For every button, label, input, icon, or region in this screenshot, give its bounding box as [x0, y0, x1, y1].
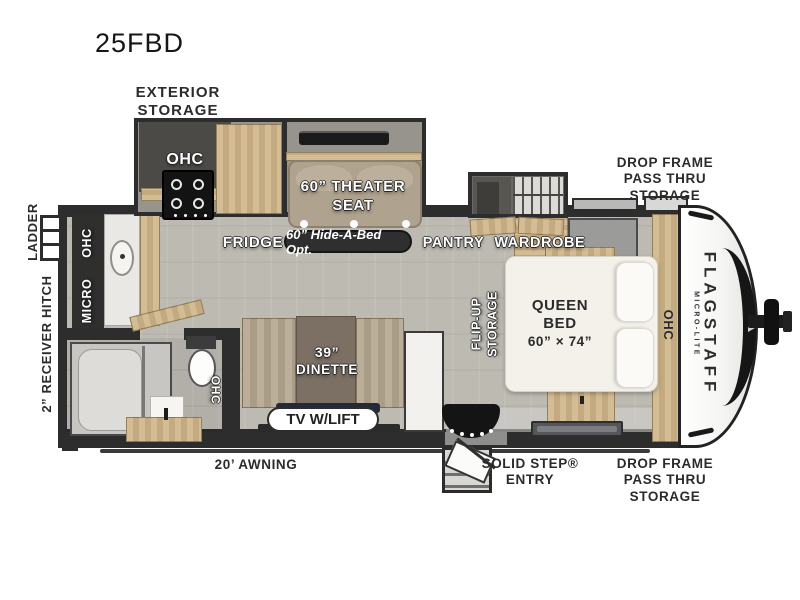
solid-step-callout: SOLID STEP® ENTRY: [475, 456, 585, 489]
pillow: [616, 262, 654, 322]
hide-a-bed-badge: 60” Hide-A-Bed Opt.: [284, 230, 412, 253]
knob: [184, 214, 187, 217]
page-title: 25FBD: [95, 28, 184, 59]
burner: [193, 179, 204, 190]
rear-stabilizer: [62, 436, 78, 451]
dresser-knob: [580, 396, 584, 404]
entry-mat-inner: [537, 426, 617, 432]
knob: [194, 214, 197, 217]
wardrobe-interior: [513, 177, 563, 214]
range-stove: [162, 170, 214, 220]
kitchen-faucet: [120, 254, 125, 259]
burner: [171, 179, 182, 190]
ohc-slide-label: OHC: [139, 150, 231, 170]
griddle-dot: [470, 433, 474, 437]
outside-griddle: [442, 404, 500, 438]
bath-wall-top-left: [62, 328, 140, 340]
pillow: [616, 328, 654, 388]
brand-name: FLAGSTAFF: [700, 252, 720, 397]
slide-divider: [282, 122, 287, 214]
ladder-rung: [43, 229, 59, 232]
entry-mat: [531, 421, 623, 437]
ladder-icon: [40, 215, 62, 261]
griddle-dot: [450, 429, 454, 433]
griddle-dot: [489, 429, 493, 433]
slide-tv-bar: [299, 131, 389, 145]
bath-wall-right: [222, 328, 240, 444]
burner: [171, 198, 182, 209]
drop-frame-top-callout: DROP FRAME PASS THRU STORAGE: [600, 155, 730, 204]
burner: [193, 198, 204, 209]
pantry-door: [477, 182, 499, 214]
knob: [174, 214, 177, 217]
hitch-tip: [783, 311, 792, 332]
wardrobe-rod: [513, 194, 563, 196]
awning-rail: [100, 449, 650, 453]
floorplan-canvas: 25FBD OHC MICRO OHC OHC: [0, 0, 800, 600]
tv-lift-badge: TV W/LIFT: [267, 407, 379, 432]
griddle-dot: [480, 432, 484, 436]
ladder-rung: [43, 243, 59, 246]
awning-callout: 20’ AWNING: [196, 457, 316, 473]
hitch-jack: [764, 299, 779, 345]
brand-model: MICRO-LITE: [693, 252, 700, 397]
pantry-wardrobe-label: PANTRY WARDROBE: [428, 234, 580, 252]
queen-bed-label: QUEEN BED 60” × 74”: [505, 297, 615, 350]
exterior-storage-callout: EXTERIOR STORAGE: [108, 84, 248, 121]
bath-vanity: [126, 417, 202, 442]
tv-cabinet: [404, 331, 444, 432]
bed-foot-dresser: [547, 391, 615, 425]
fridge-label: FRIDGE: [213, 234, 293, 253]
pantry-interior: [473, 177, 511, 214]
bath-faucet: [164, 408, 168, 420]
drop-frame-bottom-callout: DROP FRAME PASS THRU STORAGE: [600, 456, 730, 505]
toilet-tank: [186, 336, 216, 349]
theater-seat-label: 60” THEATER SEAT: [292, 178, 414, 216]
griddle-dot: [460, 432, 464, 436]
knob: [204, 214, 207, 217]
dinette-label: 39” DINETTE: [277, 344, 377, 378]
